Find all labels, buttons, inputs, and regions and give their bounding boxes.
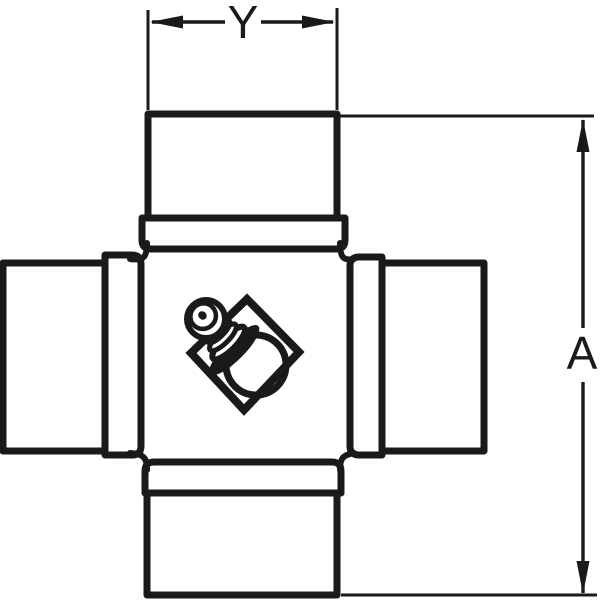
bottom-cap-body bbox=[147, 493, 337, 595]
y-dimension-label: Y bbox=[228, 0, 259, 48]
y-arrow-left bbox=[150, 16, 183, 29]
left-cap-lip bbox=[105, 255, 141, 455]
neck-fillet-bottom-left bbox=[130, 453, 147, 470]
left-bearing-cap bbox=[3, 255, 141, 455]
a-dimension-label: A bbox=[567, 327, 598, 379]
bottom-cap-lip bbox=[145, 462, 341, 493]
a-arrow-up bbox=[577, 119, 590, 152]
grease-fitting bbox=[167, 283, 299, 410]
top-bearing-cap bbox=[142, 114, 345, 249]
top-cap-body bbox=[148, 114, 337, 218]
bottom-bearing-cap bbox=[145, 462, 341, 595]
ujoint-cross-diagram: Y A bbox=[0, 0, 600, 600]
left-cap-body bbox=[3, 263, 105, 451]
y-arrow-right bbox=[302, 16, 335, 29]
right-bearing-cap bbox=[350, 257, 484, 455]
right-cap-body bbox=[382, 263, 484, 451]
a-arrow-down bbox=[577, 561, 590, 594]
diagram-canvas: Y A bbox=[0, 0, 600, 600]
top-cap-lip bbox=[142, 218, 345, 249]
neck-fillet-bottom-right bbox=[340, 453, 354, 470]
neck-fillet-top-left bbox=[130, 243, 147, 259]
right-cap-lip bbox=[350, 257, 382, 455]
dimension-y: Y bbox=[148, 0, 337, 110]
